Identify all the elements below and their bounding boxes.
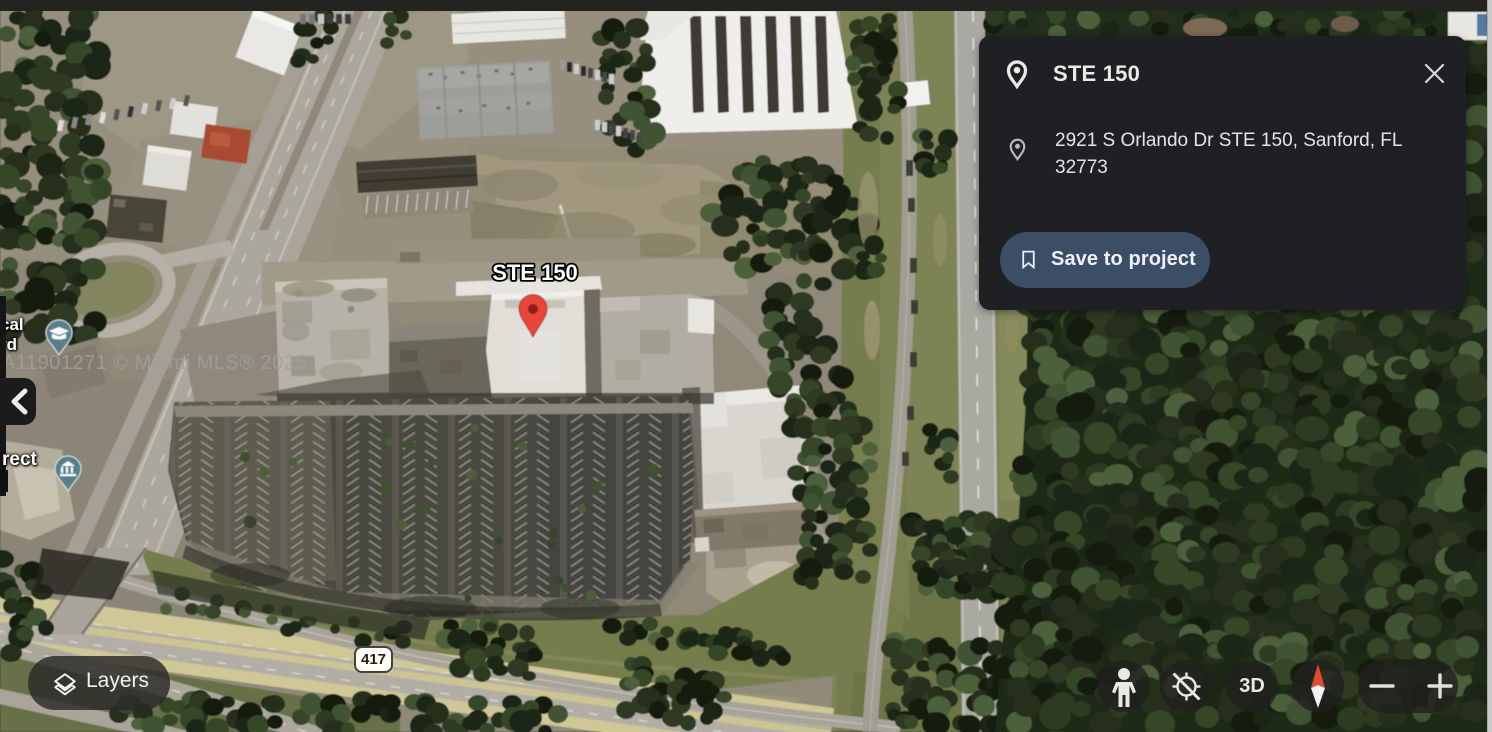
svg-text:STE 150: STE 150 [492, 260, 578, 285]
